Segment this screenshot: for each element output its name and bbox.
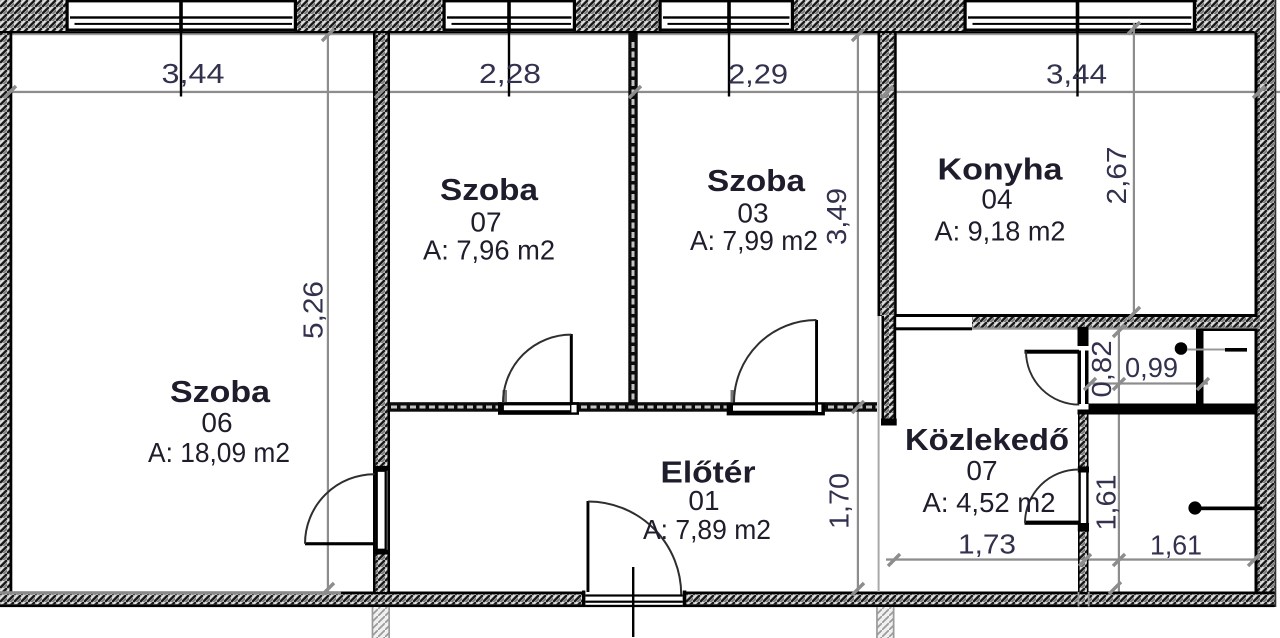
svg-text:5,26: 5,26 xyxy=(298,281,329,339)
svg-text:04: 04 xyxy=(981,184,1012,215)
svg-text:01: 01 xyxy=(688,485,719,516)
svg-text:A: 7,99 m2: A: 7,99 m2 xyxy=(690,225,818,256)
svg-text:2,29: 2,29 xyxy=(728,59,788,90)
svg-text:Szoba: Szoba xyxy=(707,163,806,198)
svg-text:Szoba: Szoba xyxy=(440,172,539,207)
svg-text:07: 07 xyxy=(966,455,997,486)
svg-text:0,82: 0,82 xyxy=(1086,341,1117,398)
svg-text:0,99: 0,99 xyxy=(1125,352,1178,383)
svg-text:A: 7,89 m2: A: 7,89 m2 xyxy=(643,514,771,545)
svg-text:A: 7,96 m2: A: 7,96 m2 xyxy=(423,235,555,266)
svg-text:A: 18,09 m2: A: 18,09 m2 xyxy=(148,437,290,468)
svg-text:Szoba: Szoba xyxy=(170,374,271,409)
svg-text:1,73: 1,73 xyxy=(958,529,1016,560)
svg-text:3,44: 3,44 xyxy=(1046,59,1107,90)
svg-text:2,67: 2,67 xyxy=(1101,147,1132,205)
svg-text:A: 9,18 m2: A: 9,18 m2 xyxy=(935,216,1066,247)
svg-text:2,28: 2,28 xyxy=(479,58,541,89)
svg-text:3,49: 3,49 xyxy=(821,188,852,245)
svg-text:1,70: 1,70 xyxy=(824,473,855,529)
svg-text:1,61: 1,61 xyxy=(1150,530,1202,561)
svg-text:1,61: 1,61 xyxy=(1091,475,1122,531)
svg-text:Közlekedő: Közlekedő xyxy=(905,422,1069,457)
svg-text:3,44: 3,44 xyxy=(162,58,225,89)
svg-text:07: 07 xyxy=(470,207,501,238)
svg-text:A: 4,52 m2: A: 4,52 m2 xyxy=(923,487,1056,518)
svg-text:03: 03 xyxy=(737,198,768,229)
svg-text:Konyha: Konyha xyxy=(938,152,1064,187)
svg-text:06: 06 xyxy=(201,407,232,438)
